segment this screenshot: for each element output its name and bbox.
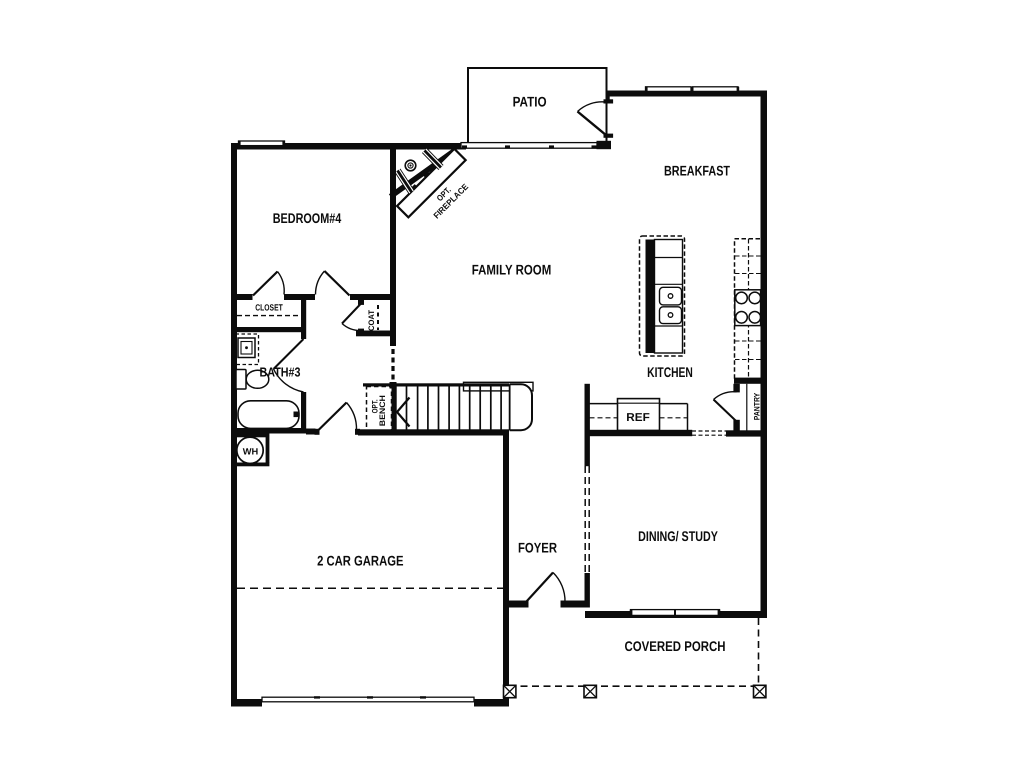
svg-text:FAMILY ROOM: FAMILY ROOM	[472, 262, 552, 278]
svg-text:COVERED PORCH: COVERED PORCH	[625, 638, 726, 654]
svg-text:BREAKFAST: BREAKFAST	[664, 163, 730, 179]
svg-text:BENCH: BENCH	[378, 395, 387, 426]
svg-text:BATH#3: BATH#3	[260, 365, 301, 380]
svg-text:KITCHEN: KITCHEN	[647, 364, 693, 380]
svg-text:REF: REF	[626, 412, 650, 424]
svg-text:COAT: COAT	[367, 310, 376, 331]
svg-text:PATIO: PATIO	[513, 94, 547, 110]
svg-text:DINING/ STUDY: DINING/ STUDY	[638, 528, 718, 544]
svg-text:WH: WH	[243, 447, 259, 457]
svg-text:BEDROOM#4: BEDROOM#4	[273, 210, 342, 226]
svg-text:FOYER: FOYER	[518, 540, 557, 556]
svg-text:PANTRY: PANTRY	[752, 392, 761, 420]
svg-text:CLOSET: CLOSET	[255, 303, 283, 313]
svg-text:2 CAR GARAGE: 2 CAR GARAGE	[317, 553, 403, 569]
